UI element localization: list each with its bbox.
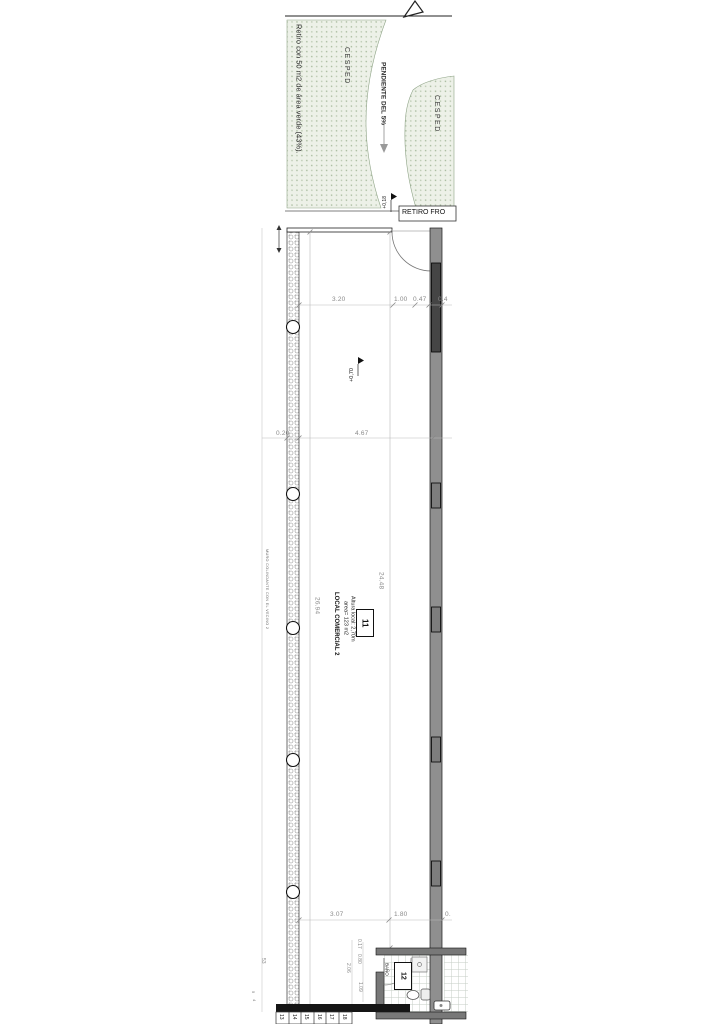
dim-top-1: 3.20 <box>332 297 345 304</box>
window-2 <box>432 607 441 632</box>
bath-bottom-wall <box>376 1012 466 1019</box>
site-area <box>285 1 456 221</box>
entry-level-label: +0,18 <box>383 196 388 209</box>
slope-arrow-head-icon <box>380 144 388 153</box>
bathroom-number-box: 12 <box>394 962 412 990</box>
dim-bottom-3: 0. <box>445 912 451 919</box>
unit-area-label: area= 123 m2 <box>342 601 348 635</box>
dim-top-3: 0.47 <box>413 297 426 304</box>
slope-label: PENDIENTE DEL 5% <box>379 62 386 125</box>
dim-bath-2: 0.80 <box>356 954 361 964</box>
column-2 <box>287 488 300 501</box>
tread-16: 16 <box>316 1014 321 1020</box>
north-arrow-icon <box>404 1 423 17</box>
tread-18: 18 <box>341 1014 346 1020</box>
unit-name-label: LOCAL COMERCIAL 2 <box>333 592 339 655</box>
bathroom-label: BAÑO <box>384 963 389 976</box>
tread-17: 17 <box>328 1014 333 1020</box>
column-1 <box>287 321 300 334</box>
front-setback-label: RETIRO FRO <box>402 209 445 216</box>
column-4 <box>287 754 300 767</box>
toilet-tank-icon <box>421 989 430 1000</box>
tread-14: 14 <box>291 1014 296 1020</box>
tread-15: 15 <box>303 1014 308 1020</box>
unit-number: 11 <box>361 619 370 627</box>
column-5 <box>287 886 300 899</box>
dim-top-4: 0.4 <box>438 297 448 304</box>
grass-label-left: CESPED <box>343 47 350 85</box>
dim-mid-1: 0.20 <box>276 431 289 438</box>
fixture-dot-icon <box>440 1004 443 1007</box>
window-4 <box>432 861 441 886</box>
unit-height-label: Altura local: 2,70m <box>349 596 355 642</box>
dim-length-left: 26.94 <box>313 597 320 614</box>
column-3 <box>287 622 300 635</box>
grass-label-right: CESPED <box>433 95 440 133</box>
front-wall <box>287 228 392 232</box>
window-3 <box>432 737 441 762</box>
dim-top-2: 1.00 <box>394 297 407 304</box>
section-cut-band <box>276 1004 410 1012</box>
party-wall-note: MURO COLINDANTE CON EL VECINO 2 <box>264 549 268 629</box>
floor-level-marker <box>358 357 364 376</box>
dim-bath-3: 2.06 <box>345 963 350 973</box>
window-1 <box>432 483 441 508</box>
dim-bottom-2: 1.80 <box>394 912 407 919</box>
bathroom-number: 12 <box>400 972 407 980</box>
plan-linework <box>0 0 723 1024</box>
dim-mid-2: 4.67 <box>355 431 368 438</box>
dim-length-right: 24.48 <box>377 572 384 589</box>
floorplan-sheet: Retiro con 50 m2 de área verde (43%). CE… <box>0 0 723 1024</box>
dim-bath-4: 1.09 <box>357 982 362 992</box>
dim-side: 53 <box>260 958 265 964</box>
side-tread-b: 4 <box>252 999 256 1001</box>
unit-number-box: 11 <box>356 609 374 637</box>
entry-level-flag-icon <box>391 193 397 200</box>
front-dim-bracket <box>277 225 282 253</box>
floor-level-label: +0,70 <box>350 368 356 382</box>
tread-13: 13 <box>278 1014 283 1020</box>
sink-icon <box>412 957 427 972</box>
side-tread-a: 5 <box>251 991 255 993</box>
entrance-door-swing <box>392 232 431 271</box>
green-area-note: Retiro con 50 m2 de área verde (43%). <box>295 24 303 154</box>
toilet-icon <box>407 991 419 1000</box>
dim-bottom-1: 3.07 <box>330 912 343 919</box>
bath-top-wall <box>376 948 466 955</box>
dim-bath-1: 0.17 <box>356 939 361 949</box>
grass-area-right <box>405 76 454 208</box>
storefront-glazing <box>432 263 441 352</box>
